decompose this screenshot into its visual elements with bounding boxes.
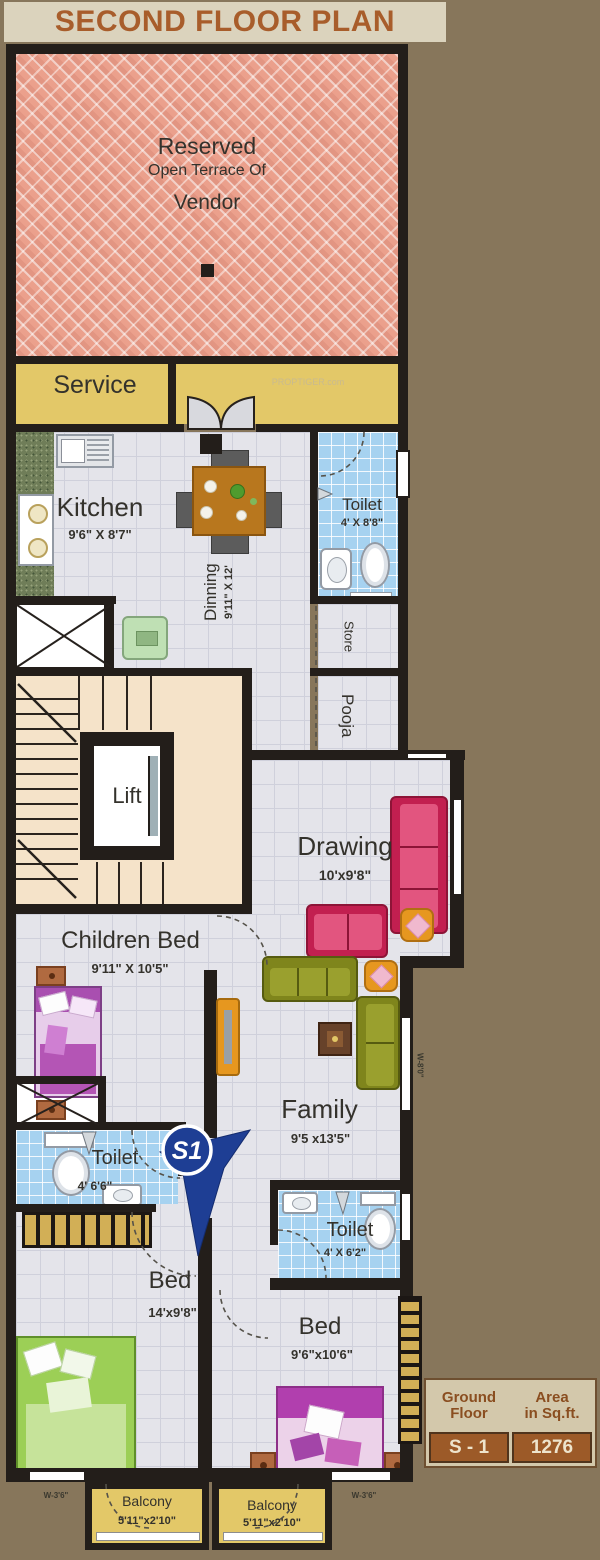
window-family-label: W-8'0" [415,1030,423,1100]
toilet-top-label: Toilet [330,496,394,514]
table-cell-unit: S - 1 [429,1432,509,1463]
table-header-floor: Ground Floor [429,1383,509,1429]
terrace-label-line3: Vendor [16,192,398,214]
s1-marker-label: S1 [172,1137,203,1165]
store-label: Store [342,608,356,666]
toilet-right-dims: 4' X 6'2" [305,1248,385,1260]
bed-right-label: Bed [285,1314,355,1339]
balcony-left-dims: 5'11"x2'10" [90,1516,204,1528]
service-label: Service [30,372,160,398]
dinning-label: Dinning [202,542,220,642]
s1-marker: S1 [160,1126,250,1256]
table-header-area-line2: in Sq.ft. [512,1406,592,1423]
table-header-floor-line1: Ground [429,1390,509,1407]
window-right-label: W-3'6" [336,1492,392,1500]
table-header-floor-line2: Floor [429,1406,509,1423]
pooja-label: Pooja [338,680,356,752]
toilet-right-label: Toilet [310,1220,390,1241]
title-bar: SECOND FLOOR PLAN [4,2,446,42]
toilet-top-dims: 4' X 8'8" [326,518,398,530]
children-bed-label: Children Bed [48,928,213,953]
floor-plan: Lift [0,0,600,1560]
page-title: SECOND FLOOR PLAN [4,2,446,42]
table-header-area-line1: Area [512,1390,592,1407]
stair-diagonal [18,684,76,898]
area-summary-table: Ground Floor Area in Sq.ft. S - 1 1276 [424,1378,597,1468]
watermark: PROPTIGER.com [258,378,358,387]
kitchen-label: Kitchen [40,494,160,521]
shaft-x-icon [17,605,111,1125]
toilet-left-dims: 4' 6'6" [50,1180,140,1193]
bed-left-label: Bed [135,1268,205,1293]
kitchen-dims: 9'6" X 8'7" [45,528,155,542]
balcony-left-label: Balcony [90,1494,204,1509]
balcony-right-label: Balcony [216,1498,328,1513]
terrace-label-line1: Reserved [16,134,398,158]
window-left-label: W-3'6" [28,1492,84,1500]
family-dims: 9'5 x13'5" [268,1132,373,1146]
balcony-right-dims: 5'11"x2'10" [216,1518,328,1530]
bed-left-dims: 14'x9'8" [130,1306,215,1320]
table-header-area: Area in Sq.ft. [512,1383,592,1429]
drawing-dims: 10'x9'8" [300,868,390,883]
drawing-label: Drawing [285,833,405,860]
french-door-icon [188,397,254,429]
dinning-dims: 9'11" X 12' [224,545,236,640]
family-label: Family [262,1096,377,1123]
table-cell-area: 1276 [512,1432,592,1463]
toilet-left-label: Toilet [70,1148,160,1169]
children-bed-dims: 9'11" X 10'5" [60,962,200,976]
terrace-label-line2: Open Terrace Of [16,163,398,180]
bed-right-dims: 9'6"x10'6" [282,1348,362,1362]
